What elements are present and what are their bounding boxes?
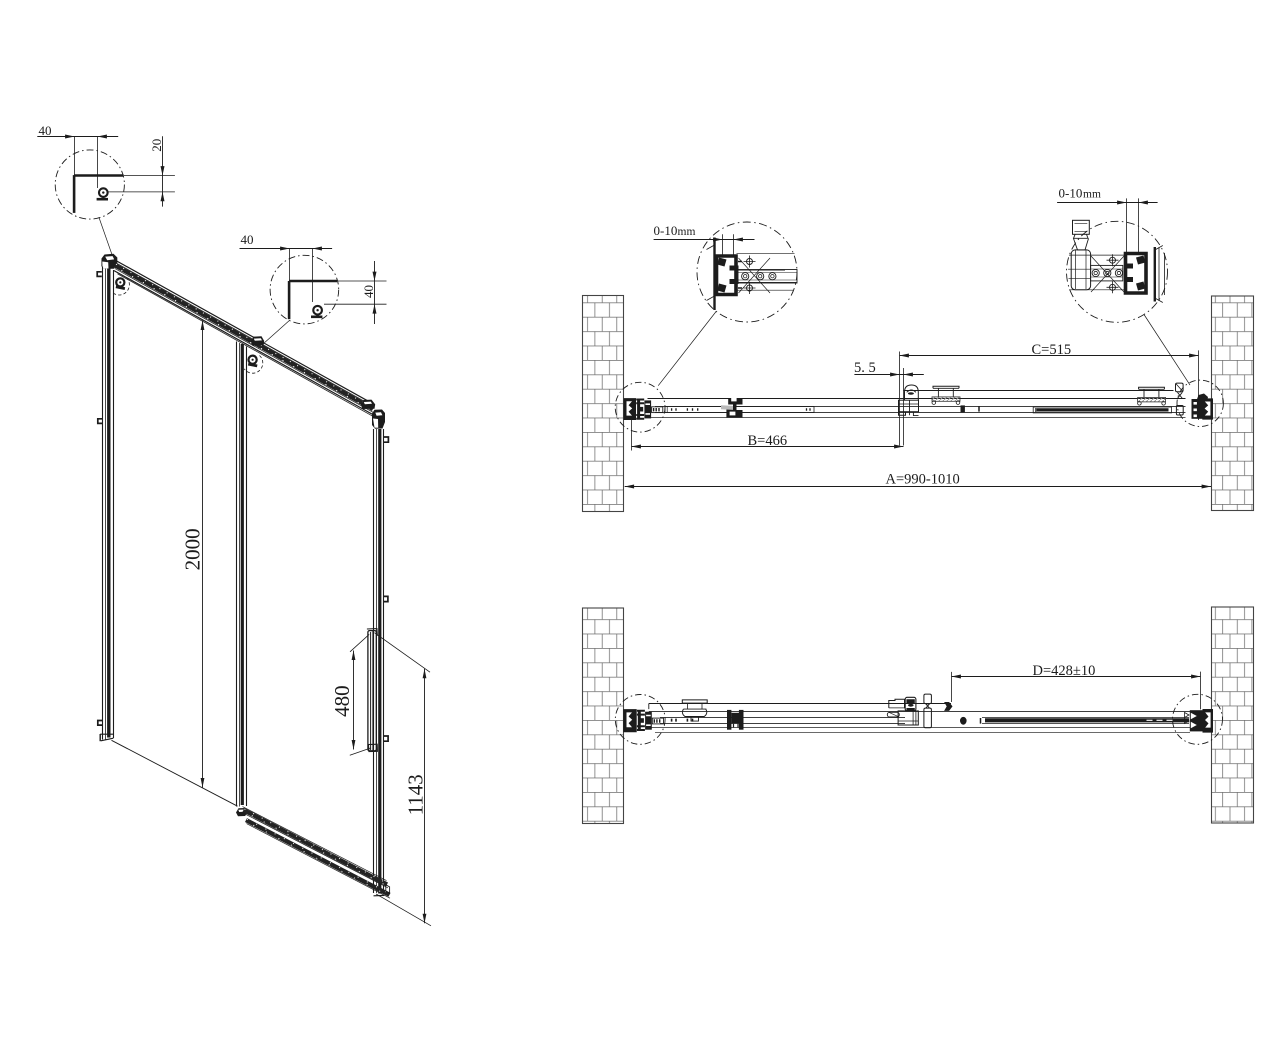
svg-text:40: 40: [361, 285, 376, 298]
svg-text:480: 480: [330, 685, 354, 717]
svg-text:0-10: 0-10: [1059, 186, 1083, 201]
svg-text:40: 40: [39, 123, 52, 138]
svg-text:A=990-1010: A=990-1010: [886, 472, 960, 488]
svg-text:20: 20: [149, 139, 164, 152]
svg-text:mm: mm: [1083, 189, 1101, 201]
svg-text:5. 5: 5. 5: [854, 360, 876, 376]
svg-text:2000: 2000: [180, 528, 204, 570]
svg-text:0-10: 0-10: [654, 223, 678, 238]
svg-text:40: 40: [241, 232, 254, 247]
svg-text:mm: mm: [678, 226, 696, 238]
